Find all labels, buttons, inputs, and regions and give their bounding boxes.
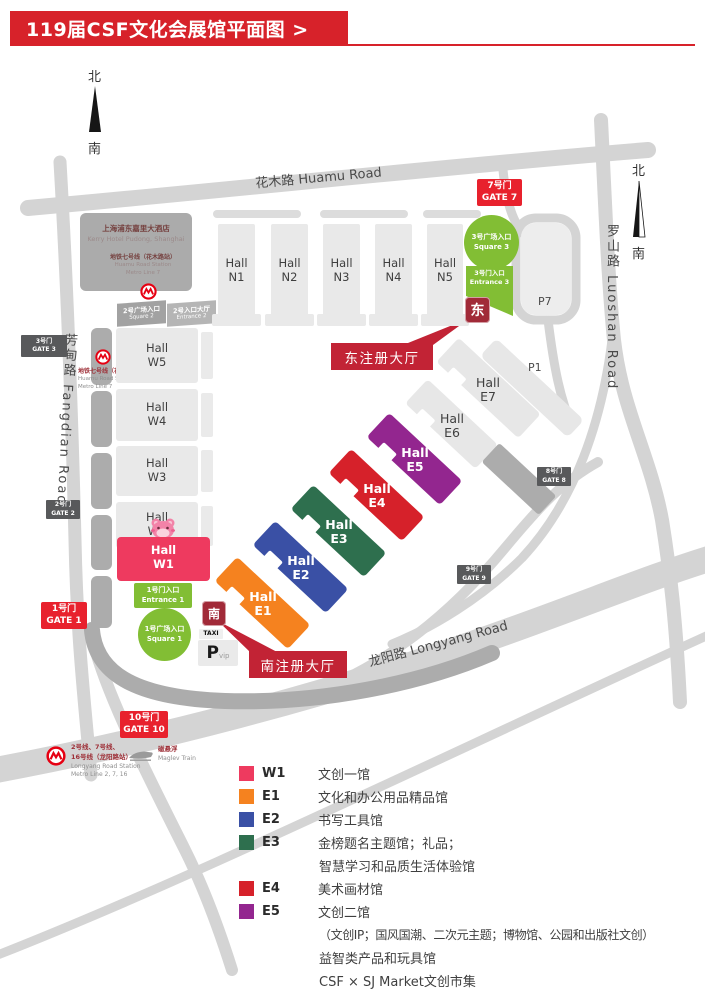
legend-desc-e5-4: CSF × SJ Market文创市集 <box>319 971 476 990</box>
gate-9-zh: 9号门 <box>457 566 491 574</box>
gate-8-zh: 8号门 <box>537 468 571 476</box>
legend-swatch-e1 <box>239 789 254 804</box>
n-hall-bar <box>213 210 301 218</box>
taxi-label: TAXI <box>199 629 223 639</box>
legend-swatch-w1 <box>239 766 254 781</box>
legend-row-e5-cont1: （文创IP；国风国潮、二次元主题；博物馆、公园和出版社文创） <box>239 923 654 946</box>
square-1-circle: 1号广场入口 Square 1 <box>138 608 191 661</box>
legend-row-w1: W1 文创一馆 <box>239 762 370 785</box>
compass-left-north: 北 <box>88 66 101 85</box>
legend-metro-en2: Metro Line 2, 7, 16 <box>71 771 141 780</box>
gate-7-zh: 7号门 <box>477 181 522 193</box>
n-hall-bar <box>423 210 481 218</box>
legend-row-e3-cont: 智慧学习和品质生活体验馆 <box>239 854 475 877</box>
gate-2-zh: 2号门 <box>46 501 80 509</box>
luoshan-road-label: 罗山路 Luoshan Road <box>602 224 621 390</box>
maglev-zh: 磁悬浮 <box>158 745 196 755</box>
compass-left-south: 南 <box>88 138 101 157</box>
hall-n5-label: HallN5 <box>427 257 463 285</box>
gate-10-zh: 10号门 <box>120 713 168 725</box>
legend-desc-e4: 美术画材馆 <box>318 879 383 898</box>
hotel-name-en: Kerry Hotel Pudong, Shanghai <box>80 235 192 243</box>
legend-swatch-e5 <box>239 904 254 919</box>
hall-n3-label: HallN3 <box>323 257 360 285</box>
south-registration-label: 南注册大厅 <box>249 651 347 678</box>
hall-e3-label: HallE3 <box>317 518 361 547</box>
legend-desc-e3: 金榜题名主题馆；礼品； <box>318 833 461 852</box>
legend-desc-e5: 文创二馆 <box>318 902 370 921</box>
hall-e5-label: HallE5 <box>393 446 437 475</box>
floorplan-page: 119届CSF文化会展馆平面图 > <box>0 0 705 997</box>
square-3-circle: 3号广场入口 Square 3 <box>464 215 519 270</box>
legend-desc-e5-3: 益智类产品和玩具馆 <box>319 948 436 967</box>
legend-code-w1: W1 <box>258 766 318 781</box>
square-1-en: Square 1 <box>138 635 191 645</box>
vip-parking-box: P vip <box>198 640 238 666</box>
legend-row-e5-cont2: 益智类产品和玩具馆 <box>239 946 436 969</box>
gate-7-en: GATE 7 <box>477 193 522 205</box>
maglev-icon <box>128 748 154 767</box>
gate-10-en: GATE 10 <box>120 725 168 737</box>
gate-7-badge: 7号门 GATE 7 <box>477 179 522 206</box>
p1-label: P1 <box>528 361 542 374</box>
legend-row-e1: E1 文化和办公用品精品馆 <box>239 785 448 808</box>
legend-row-e4: E4 美术画材馆 <box>239 877 383 900</box>
gate-1-badge: 1号门 GATE 1 <box>41 602 87 629</box>
gate-9-badge: 9号门 GATE 9 <box>457 565 491 584</box>
legend-row-e3: E3 金榜题名主题馆；礼品； <box>239 831 461 854</box>
w-side-tab <box>201 393 213 437</box>
gate-3-zh: 3号门 <box>21 338 67 346</box>
entrance-1-badge: 1号门入口 Entrance 1 <box>134 583 192 608</box>
legend-desc-e3-2: 智慧学习和品质生活体验馆 <box>319 856 475 875</box>
compass-right-north: 北 <box>632 160 645 179</box>
maglev-label: 磁悬浮 Maglev Train <box>158 745 196 763</box>
kerry-hotel-block: 上海浦东嘉里大酒店 Kerry Hotel Pudong, Shanghai 地… <box>80 213 192 291</box>
hall-n4-label: HallN4 <box>375 257 412 285</box>
p7-label: P7 <box>538 295 552 308</box>
legend-desc-e1: 文化和办公用品精品馆 <box>318 787 448 806</box>
legend-swatch-e3 <box>239 835 254 850</box>
gate-8-en: GATE 8 <box>537 477 571 485</box>
hall-n1-label: HallN1 <box>218 257 255 285</box>
compass-left-needle <box>89 86 101 132</box>
south-marker: 南 <box>202 601 226 626</box>
legend-row-e2: E2 书写工具馆 <box>239 808 383 831</box>
w-side-tab <box>201 332 213 379</box>
gate-1-zh: 1号门 <box>41 604 87 616</box>
gate-3-en: GATE 3 <box>21 346 67 354</box>
hotel-metro-zh: 地铁七号线（花木路站） <box>110 253 176 262</box>
hotel-metro-en2: Metro Line 7 <box>110 270 176 278</box>
hall-w5-label: HallW5 <box>116 342 198 370</box>
gate-9-en: GATE 9 <box>457 575 491 583</box>
hall-w1-label: HallW1 <box>117 544 210 572</box>
hall-n2-label: HallN2 <box>271 257 308 285</box>
gate-2-en: GATE 2 <box>46 510 80 518</box>
legend-desc-e2: 书写工具馆 <box>318 810 383 829</box>
hall-e6-label: HallE6 <box>430 412 474 441</box>
hotel-metro-en1: Huamu Road Station <box>110 262 176 270</box>
entrance-1-en: Entrance 1 <box>134 596 192 605</box>
hall-e1-label: HallE1 <box>241 590 285 619</box>
hall-e4-label: HallE4 <box>355 482 399 511</box>
legend-desc-w1: 文创一馆 <box>318 764 370 783</box>
compass-right-south: 南 <box>632 243 645 262</box>
gate-10-badge: 10号门 GATE 10 <box>120 711 168 738</box>
square-1-zh: 1号广场入口 <box>138 625 191 635</box>
legend-code-e1: E1 <box>258 789 318 804</box>
legend-row-e5-cont3: CSF × SJ Market文创市集 <box>239 969 476 992</box>
maglev-en: Maglev Train <box>158 755 196 764</box>
legend-swatch-e4 <box>239 881 254 896</box>
metro-icon <box>46 746 66 770</box>
east-registration-label: 东注册大厅 <box>331 343 433 370</box>
metro-icon <box>95 349 111 369</box>
parking-vip: vip <box>219 652 230 660</box>
entrance-3-label: 3号门入口 Entrance 3 <box>466 269 513 287</box>
w-side-tab <box>201 450 213 492</box>
compass-right-needle-half <box>639 181 645 237</box>
gate-8-badge: 8号门 GATE 8 <box>537 467 571 486</box>
gate-2-badge: 2号门 GATE 2 <box>46 500 80 519</box>
gate-3-badge: 3号门 GATE 3 <box>21 335 67 357</box>
legend-code-e5: E5 <box>258 904 318 919</box>
legend-swatch-e2 <box>239 812 254 827</box>
east-marker: 东 <box>465 297 490 323</box>
legend-row-e5: E5 文创二馆 <box>239 900 370 923</box>
entrance-2-badge: 2号入口大厅 Entrance 2 <box>167 300 216 326</box>
hall-w3-label: HallW3 <box>116 457 198 485</box>
legend-code-e3: E3 <box>258 835 318 850</box>
legend-desc-e5-2: （文创IP；国风国潮、二次元主题；博物馆、公园和出版社文创） <box>319 926 654 943</box>
hall-e7-label: HallE7 <box>466 376 510 405</box>
hall-e2-label: HallE2 <box>279 554 323 583</box>
legend-code-e4: E4 <box>258 881 318 896</box>
square-2-badge: 2号广场入口 Square 2 <box>117 300 166 326</box>
entrance-1-zh: 1号门入口 <box>134 586 192 595</box>
parking-p: P <box>207 643 219 663</box>
n-hall-bar <box>320 210 408 218</box>
square-3-zh: 3号广场入口 <box>464 233 519 243</box>
square-3-en: Square 3 <box>464 243 519 253</box>
legend-code-e2: E2 <box>258 812 318 827</box>
hotel-name-zh: 上海浦东嘉里大酒店 <box>80 224 192 235</box>
hall-w4-label: HallW4 <box>116 401 198 429</box>
gate-1-en: GATE 1 <box>41 616 87 628</box>
